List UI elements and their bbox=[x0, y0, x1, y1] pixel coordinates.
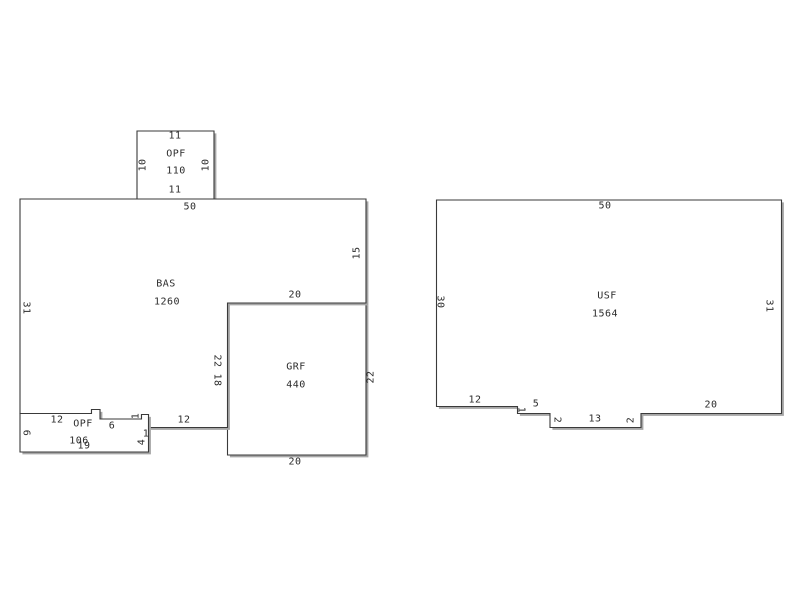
dimension-label: 20 bbox=[288, 290, 301, 301]
dimension-label: 20 bbox=[704, 400, 717, 411]
dimension-label: 18 bbox=[212, 373, 223, 386]
dimension-label: 2 bbox=[626, 417, 637, 424]
dimension-label: 22 bbox=[212, 354, 223, 367]
dimension-label: 30 bbox=[435, 295, 446, 308]
dimension-label: 12 bbox=[468, 395, 481, 406]
dimension-label: 5 bbox=[533, 399, 540, 410]
dimension-label: 50 bbox=[598, 201, 611, 212]
dimension-label: 12 bbox=[177, 415, 190, 426]
dimension-label: 1564 bbox=[592, 309, 618, 320]
dimension-label: 11 bbox=[168, 185, 181, 196]
dimension-label: 22 bbox=[366, 370, 377, 383]
area-code-label: BAS bbox=[156, 279, 176, 290]
area-code-label: USF bbox=[597, 291, 617, 302]
dimension-label: 15 bbox=[352, 246, 363, 259]
area-code-label: OPF bbox=[73, 419, 93, 430]
dimension-label: 11 bbox=[168, 131, 181, 142]
dimension-label: 19 bbox=[77, 441, 90, 452]
dimension-label: 10 bbox=[138, 158, 149, 171]
floorplan-canvas: 11OPF11011101050BAS126031152022181212OPF… bbox=[0, 0, 800, 600]
dimension-label: 1260 bbox=[154, 297, 180, 308]
area-code-label: OPF bbox=[166, 149, 186, 160]
area-code-label: GRF bbox=[286, 362, 306, 373]
dimension-label: 50 bbox=[183, 202, 196, 213]
dimension-label: 31 bbox=[764, 299, 775, 312]
dimension-label: 2 bbox=[552, 417, 563, 424]
dimension-label: 4 bbox=[137, 439, 148, 446]
dimension-label: 20 bbox=[288, 457, 301, 468]
dimension-label: 1 bbox=[131, 413, 142, 420]
dimension-label: 6 bbox=[21, 430, 32, 437]
dimension-label: 12 bbox=[50, 415, 63, 426]
dimension-label: 13 bbox=[588, 414, 601, 425]
dimension-label: 1 bbox=[143, 429, 150, 440]
sketch-page: 11OPF11011101050BAS126031152022181212OPF… bbox=[0, 0, 800, 600]
dimension-label: 6 bbox=[109, 421, 116, 432]
dimension-label: 1 bbox=[516, 407, 527, 414]
dimension-label: 110 bbox=[166, 166, 186, 177]
dimension-label: 31 bbox=[21, 301, 32, 314]
dimension-label: 10 bbox=[201, 158, 212, 171]
dimension-label: 440 bbox=[286, 380, 306, 391]
